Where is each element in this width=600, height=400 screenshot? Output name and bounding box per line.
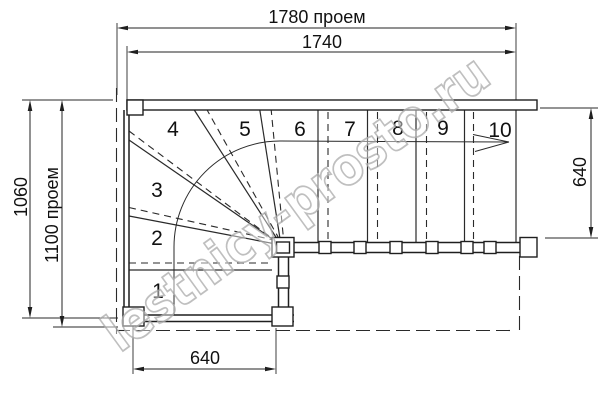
- newel-post-bottom: [272, 307, 293, 326]
- dim-label-top-outer: 1780 проем: [268, 7, 365, 27]
- baluster: [277, 276, 289, 288]
- dim-label-bottom: 640: [190, 348, 220, 368]
- baluster: [461, 242, 473, 254]
- baluster: [484, 242, 496, 254]
- top-left-corner-post: [127, 100, 143, 115]
- rail-end-block: [520, 238, 537, 258]
- watermark-text: lestnicy-prosto.ru: [92, 44, 501, 364]
- dim-label-left-outer: 1060: [11, 177, 31, 217]
- step-label-5: 5: [239, 118, 251, 141]
- dim-label-right: 640: [570, 157, 590, 187]
- baluster: [426, 242, 438, 254]
- dim-label-top-inner: 1740: [302, 32, 342, 52]
- baluster: [354, 242, 366, 254]
- railing: [272, 238, 537, 327]
- baluster: [390, 242, 402, 254]
- baluster: [319, 242, 331, 254]
- step-label-10: 10: [488, 119, 511, 142]
- staircase-plan-canvas: 1780 проем 1740 1060 1100 проем 640 640: [0, 0, 600, 400]
- step-label-3: 3: [151, 179, 163, 202]
- step-label-2: 2: [151, 227, 163, 250]
- step-label-6: 6: [294, 118, 306, 141]
- step-label-4: 4: [167, 118, 179, 141]
- dim-label-left-inner: 1100 проем: [42, 167, 62, 263]
- floor-plan-drawing: 1780 проем 1740 1060 1100 проем 640 640: [0, 0, 600, 400]
